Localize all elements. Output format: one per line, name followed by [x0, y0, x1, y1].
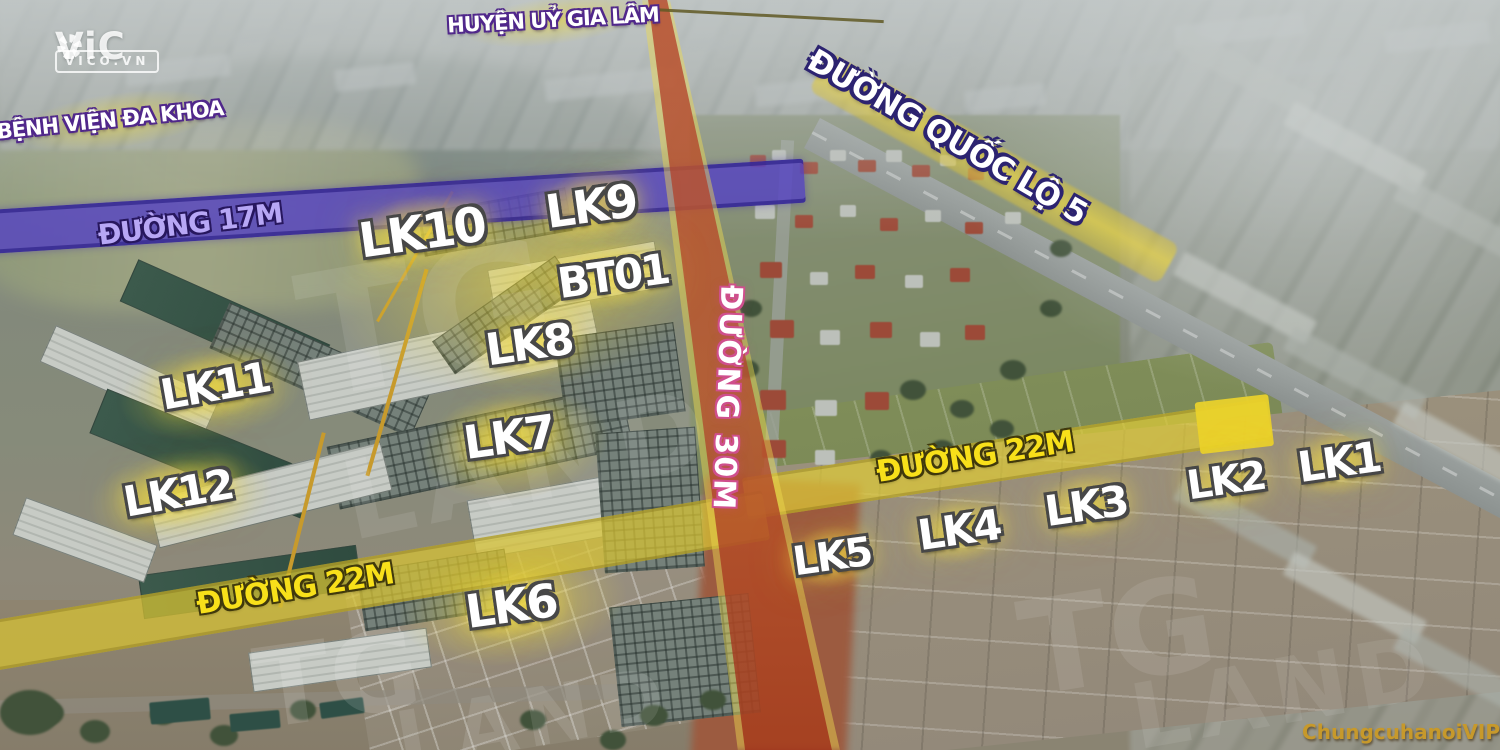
village-house [815, 450, 835, 465]
village-house [905, 275, 923, 288]
tree-cluster [80, 720, 110, 743]
lot-label-lk2: LK2 [1184, 453, 1268, 509]
lot-label-lk6: LK6 [462, 573, 560, 639]
credit-watermark: ChungcuhanoiVIP [1302, 720, 1500, 744]
lot-label-lk12: LK12 [120, 459, 237, 526]
village-house [870, 322, 892, 338]
lot-label-lk7: LK7 [460, 404, 558, 470]
village-house [810, 272, 828, 285]
village-house [760, 390, 786, 410]
village-house [820, 330, 840, 345]
village-house [815, 400, 837, 416]
tree-cluster [900, 380, 926, 400]
lot-label-lk10: LK10 [355, 196, 488, 269]
lot-label-lk11: LK11 [157, 352, 274, 419]
village-house [865, 392, 889, 410]
lot-label-lk3: LK3 [1042, 476, 1131, 536]
tree-cluster [950, 400, 974, 418]
lot-label-lk4: LK4 [915, 500, 1004, 560]
tree-cluster [700, 690, 726, 710]
lot-label-bt01: BT01 [555, 244, 672, 308]
tree-cluster [0, 690, 60, 735]
aerial-site-map: TG LAND TG LAND TG LAND ĐƯỜNG 17M ĐƯỜNG … [0, 0, 1500, 750]
vico-logo-url: VICO.VN [55, 50, 159, 73]
village-house [760, 262, 782, 278]
village-house [855, 265, 875, 279]
village-house [770, 320, 794, 338]
village-house [920, 332, 940, 347]
lot-label-lk1: LK1 [1295, 432, 1384, 492]
lot-label-lk5: LK5 [790, 529, 874, 585]
